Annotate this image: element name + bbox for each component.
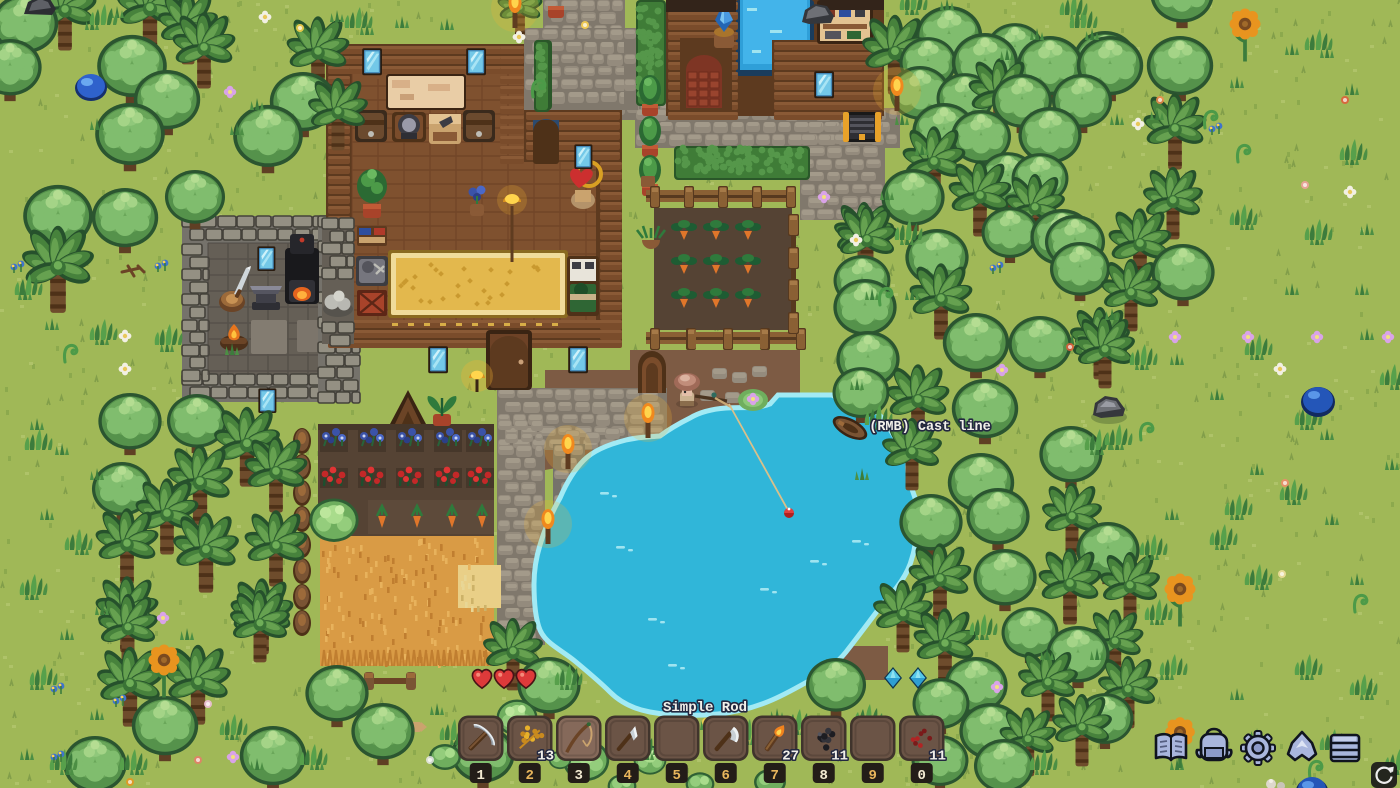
svg-text:2: 2 <box>526 768 534 784</box>
svg-text:8: 8 <box>820 768 828 784</box>
svg-text:11: 11 <box>929 749 946 765</box>
svg-text:0: 0 <box>918 768 926 784</box>
svg-text:13: 13 <box>537 749 554 765</box>
svg-text:27: 27 <box>782 749 799 765</box>
svg-text:(RMB) Cast line: (RMB) Cast line <box>869 420 991 435</box>
svg-text:4: 4 <box>624 768 632 784</box>
svg-text:7: 7 <box>771 768 779 784</box>
svg-text:1: 1 <box>477 768 485 784</box>
svg-text:6: 6 <box>722 768 730 784</box>
svg-text:9: 9 <box>869 768 877 784</box>
svg-text:11: 11 <box>831 749 848 765</box>
svg-text:5: 5 <box>673 768 681 784</box>
svg-text:Simple Rod: Simple Rod <box>663 700 747 716</box>
svg-text:3: 3 <box>575 768 583 784</box>
